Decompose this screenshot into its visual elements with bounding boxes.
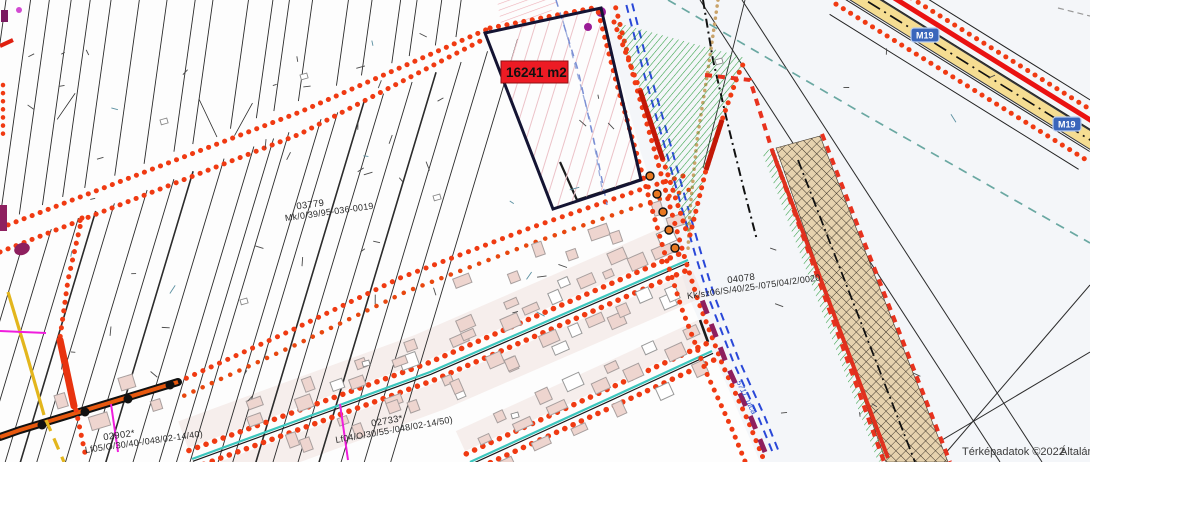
map-canvas[interactable]: 16241 m2 M19 M19 03779 Mk/0/39/95-036-00…	[0, 0, 1090, 462]
map-attribution-more[interactable]: Általán	[1060, 445, 1090, 458]
area-label-text: 16241 m2	[506, 65, 567, 80]
motorway-badge-text: M19	[1058, 120, 1076, 130]
motorway-badge[interactable]: M19	[911, 28, 939, 42]
motorway-badge-text: M19	[916, 31, 934, 41]
map-attribution-provider: Térképadatok ©2022	[962, 446, 1065, 458]
area-label: 16241 m2	[501, 61, 568, 83]
motorway-badge[interactable]: M19	[1053, 117, 1081, 131]
cadastral-map-page: 16241 m2 M19 M19 03779 Mk/0/39/95-036-00…	[0, 0, 1200, 523]
